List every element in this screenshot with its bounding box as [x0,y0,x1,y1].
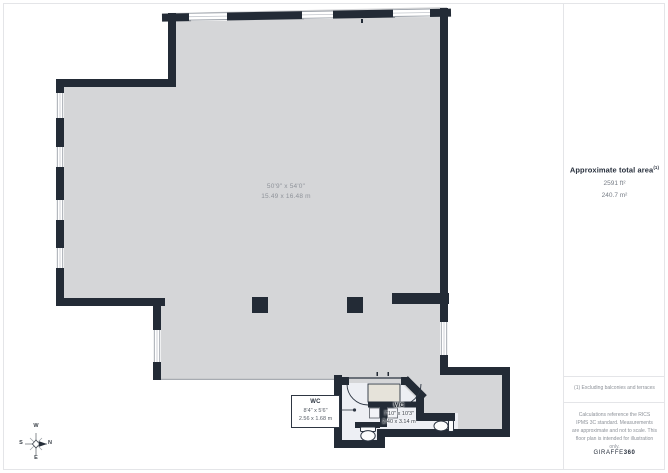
window [393,9,430,17]
wc-small-label: WC 8'4" x 5'6" 2.56 x 1.68 m [291,395,340,428]
main-room-dimensions: 50'9" x 54'0" 15.49 x 16.48 m [236,182,336,202]
wc-large-dims-metric: 2.40 x 3.14 m [369,419,429,427]
total-area-heading-text: Approximate total area [570,166,653,175]
toilet-icon [434,421,454,432]
floor-plan-page: 50'9" x 54'0" 15.49 x 16.48 m WC 8'4" x … [0,0,668,473]
brand-suffix: 360 [624,450,636,456]
pillar [252,297,268,313]
area-footnote: (1) Excluding balconies and terraces [564,385,665,391]
brand-name: GIRAFFE [593,450,623,456]
giraffe360-logo: GIRAFFE360 [564,450,665,456]
compass-north-label: N [45,440,55,446]
total-area-heading: Approximate total area(1) [564,165,665,175]
main-room-dims-imperial: 50'9" x 54'0" [236,182,336,192]
footnote-reference: (1) [653,165,659,170]
compass-east-label: E [31,455,41,461]
window [440,322,448,355]
window [56,200,64,220]
compass-west-label: W [31,423,41,429]
wc-large-name: WC [369,402,429,411]
pillar [347,297,363,313]
wc-large-label: WC 7'10" x 10'3" 2.40 x 3.14 m [369,402,429,427]
window [189,13,227,21]
disclaimer-text: Calculations reference the RICS IPMS 3C … [564,411,665,451]
door-hinge-tick [377,372,379,376]
total-area-block: Approximate total area(1) 2591 ft² 240.7… [564,165,665,199]
info-sidebar: Approximate total area(1) 2591 ft² 240.7… [563,3,665,469]
divider [564,402,665,403]
window [153,330,161,362]
window [56,147,64,167]
compass-rose [25,433,47,455]
window [56,248,64,268]
toilet-icon [361,427,376,441]
main-room-dims-metric: 15.49 x 16.48 m [236,192,336,202]
total-area-metric: 240.7 m² [564,192,665,199]
compass-south-label: S [16,440,26,446]
window [56,93,64,118]
wc-small-dims-imperial: 8'4" x 5'6" [292,407,339,415]
wall-stub [392,293,449,304]
wc-small-dims-metric: 2.56 x 1.68 m [292,415,339,423]
wc-large-dims-imperial: 7'10" x 10'3" [369,411,429,419]
window [302,11,333,19]
divider [564,376,665,377]
vanity [368,384,400,402]
wc-small-name: WC [292,398,339,407]
wall-tick [361,19,363,23]
total-area-imperial: 2591 ft² [564,180,665,187]
door-hinge-tick [388,372,390,376]
